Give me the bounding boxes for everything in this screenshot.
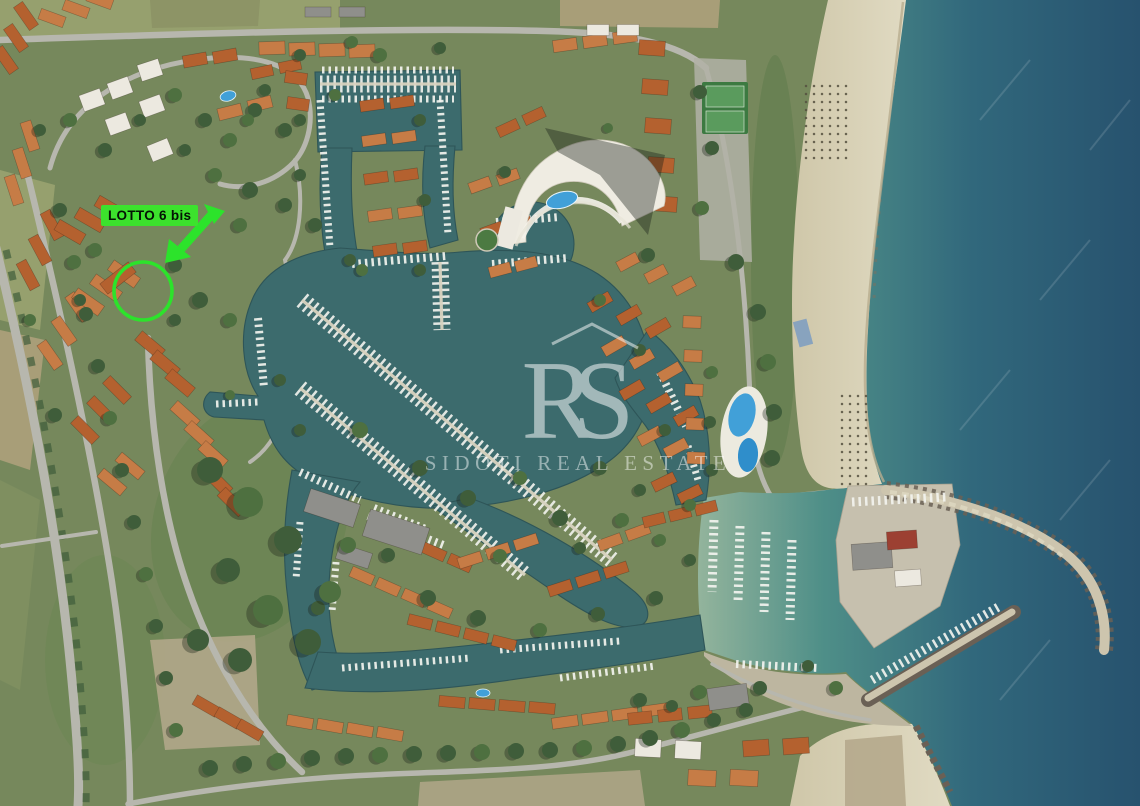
umbrella xyxy=(841,467,844,470)
tree xyxy=(706,366,718,378)
tree xyxy=(134,114,146,126)
umbrella xyxy=(857,467,860,470)
tree xyxy=(674,722,690,738)
building xyxy=(730,769,759,786)
tree xyxy=(574,542,586,554)
umbrella xyxy=(805,109,808,112)
building xyxy=(886,530,917,550)
umbrella xyxy=(849,403,852,406)
umbrella xyxy=(857,459,860,462)
tree xyxy=(127,515,141,529)
tree xyxy=(684,554,696,566)
tree xyxy=(169,314,181,326)
umbrella xyxy=(821,109,824,112)
umbrella xyxy=(821,149,824,152)
building xyxy=(639,40,666,57)
tree xyxy=(753,681,767,695)
building xyxy=(469,697,496,710)
umbrella xyxy=(865,483,868,486)
umbrella xyxy=(849,451,852,454)
tree xyxy=(340,537,356,553)
building xyxy=(642,79,669,96)
umbrella xyxy=(857,411,860,414)
umbrella xyxy=(841,395,844,398)
umbrella xyxy=(829,125,832,128)
umbrella xyxy=(813,157,816,160)
umbrella xyxy=(845,93,848,96)
umbrella xyxy=(857,403,860,406)
tree xyxy=(533,623,547,637)
umbrella xyxy=(805,133,808,136)
tree xyxy=(103,411,117,425)
building xyxy=(259,41,285,55)
umbrella xyxy=(813,117,816,120)
tree xyxy=(67,255,81,269)
building xyxy=(851,542,893,571)
tree xyxy=(615,513,629,527)
umbrella xyxy=(805,85,808,88)
tree xyxy=(542,742,558,758)
umbrella xyxy=(857,419,860,422)
umbrella xyxy=(837,157,840,160)
umbrella xyxy=(865,395,868,398)
umbrella xyxy=(845,117,848,120)
umbrella xyxy=(813,149,816,152)
tree xyxy=(499,166,511,178)
tree xyxy=(168,88,182,102)
tree xyxy=(208,168,222,182)
umbrella xyxy=(821,125,824,128)
tree xyxy=(705,141,719,155)
umbrella xyxy=(849,483,852,486)
tree xyxy=(225,390,235,400)
umbrella xyxy=(849,419,852,422)
tree xyxy=(508,743,524,759)
umbrella xyxy=(857,475,860,478)
umbrella xyxy=(837,117,840,120)
tree xyxy=(115,463,129,477)
dock xyxy=(440,262,442,330)
umbrella xyxy=(849,475,852,478)
umbrella xyxy=(857,435,860,438)
umbrella xyxy=(837,85,840,88)
tree xyxy=(634,484,646,496)
tree xyxy=(278,198,292,212)
umbrella xyxy=(805,101,808,104)
umbrella xyxy=(849,459,852,462)
umbrella xyxy=(857,443,860,446)
building xyxy=(645,118,672,135)
tree xyxy=(420,590,436,606)
tree xyxy=(304,750,320,766)
umbrella xyxy=(829,149,832,152)
umbrella xyxy=(841,411,844,414)
tennis-courts xyxy=(702,82,748,134)
building xyxy=(782,737,809,755)
tree xyxy=(693,85,707,99)
tree xyxy=(684,499,696,511)
tree xyxy=(440,745,456,761)
tree xyxy=(633,693,647,707)
tree xyxy=(576,740,592,756)
building xyxy=(894,569,921,587)
tree xyxy=(594,294,606,306)
building xyxy=(688,769,717,786)
tree xyxy=(319,581,341,603)
umbrella xyxy=(849,427,852,430)
umbrella xyxy=(837,93,840,96)
tree xyxy=(329,89,341,101)
tree xyxy=(169,723,183,737)
umbrella xyxy=(841,419,844,422)
building xyxy=(499,699,526,712)
tree xyxy=(294,169,306,181)
umbrella xyxy=(841,459,844,462)
umbrella xyxy=(829,109,832,112)
tree xyxy=(233,487,263,517)
tree xyxy=(233,218,247,232)
aerial-listing-image: RS SIDOTI REAL ESTATE LOTTO 6 bis xyxy=(0,0,1140,806)
tree xyxy=(91,359,105,373)
villa-pool xyxy=(476,689,490,697)
umbrella xyxy=(829,157,832,160)
tree xyxy=(308,218,322,232)
umbrella xyxy=(813,101,816,104)
watermark-name: SIDOTI REAL ESTATE xyxy=(425,451,732,475)
umbrella xyxy=(821,133,824,136)
tree xyxy=(603,123,613,133)
tree xyxy=(649,591,663,605)
tree xyxy=(294,424,306,436)
umbrella xyxy=(841,435,844,438)
tree xyxy=(829,681,843,695)
building xyxy=(617,25,639,36)
tree xyxy=(192,292,208,308)
tree xyxy=(223,313,237,327)
tree xyxy=(63,113,77,127)
tree xyxy=(202,760,218,776)
umbrella xyxy=(821,157,824,160)
tree xyxy=(344,254,356,266)
tree xyxy=(695,201,709,215)
tree xyxy=(460,490,476,506)
umbrella xyxy=(829,101,832,104)
umbrella xyxy=(805,149,808,152)
tree xyxy=(270,753,286,769)
tree xyxy=(493,549,507,563)
umbrella xyxy=(837,133,840,136)
umbrella xyxy=(829,85,832,88)
tree xyxy=(666,700,678,712)
satellite-imagery: RS SIDOTI REAL ESTATE xyxy=(0,0,1140,806)
umbrella xyxy=(805,93,808,96)
building xyxy=(675,740,702,759)
tree xyxy=(470,610,486,626)
umbrella xyxy=(845,85,848,88)
umbrella xyxy=(821,141,824,144)
tree xyxy=(79,307,93,321)
tree xyxy=(760,354,776,370)
dirt-lot xyxy=(845,735,906,806)
tree xyxy=(750,304,766,320)
tree xyxy=(591,607,605,621)
umbrella xyxy=(845,109,848,112)
umbrella xyxy=(841,443,844,446)
umbrella xyxy=(865,459,868,462)
tree xyxy=(295,629,321,655)
tree xyxy=(216,558,240,582)
umbrella xyxy=(841,483,844,486)
umbrella xyxy=(837,125,840,128)
tree xyxy=(474,744,490,760)
building xyxy=(529,701,556,714)
tree xyxy=(414,264,426,276)
umbrella xyxy=(865,435,868,438)
building xyxy=(685,384,703,397)
umbrella xyxy=(849,467,852,470)
tree xyxy=(74,294,86,306)
tree xyxy=(139,567,153,581)
building xyxy=(439,695,466,708)
umbrella xyxy=(845,101,848,104)
umbrella xyxy=(813,109,816,112)
umbrella xyxy=(813,93,816,96)
tree xyxy=(24,314,36,326)
umbrella xyxy=(849,411,852,414)
tree xyxy=(802,660,814,672)
umbrella xyxy=(841,427,844,430)
tree xyxy=(552,510,568,526)
building xyxy=(587,25,609,36)
tree xyxy=(278,123,292,137)
tree xyxy=(739,703,753,717)
umbrella xyxy=(845,141,848,144)
tree xyxy=(693,685,707,699)
tree xyxy=(434,42,446,54)
tree xyxy=(223,133,237,147)
umbrella xyxy=(813,85,816,88)
umbrella xyxy=(845,133,848,136)
umbrella xyxy=(829,117,832,120)
tree xyxy=(98,143,112,157)
tree xyxy=(48,408,62,422)
tree xyxy=(764,450,780,466)
garden-roundabout xyxy=(476,229,498,251)
building xyxy=(305,7,331,17)
tree xyxy=(198,113,212,127)
tree xyxy=(34,124,46,136)
tree xyxy=(187,629,209,651)
tree xyxy=(419,194,431,206)
umbrella xyxy=(805,157,808,160)
building xyxy=(684,350,702,363)
tree xyxy=(610,736,626,752)
umbrella xyxy=(845,157,848,160)
umbrella xyxy=(829,141,832,144)
umbrella xyxy=(805,117,808,120)
tree xyxy=(236,756,252,772)
umbrella xyxy=(865,403,868,406)
tree xyxy=(704,416,716,428)
tree xyxy=(406,746,422,762)
tree xyxy=(149,619,163,633)
building xyxy=(627,711,652,725)
umbrella xyxy=(813,125,816,128)
lot-label: LOTTO 6 bis xyxy=(101,205,198,226)
building xyxy=(742,739,769,757)
umbrella xyxy=(805,141,808,144)
tree xyxy=(259,84,271,96)
umbrella xyxy=(821,101,824,104)
tree xyxy=(294,49,306,61)
umbrella xyxy=(865,419,868,422)
building xyxy=(319,43,345,57)
umbrella xyxy=(813,133,816,136)
umbrella xyxy=(849,435,852,438)
umbrella xyxy=(857,483,860,486)
tree xyxy=(53,203,67,217)
umbrella xyxy=(837,109,840,112)
tree xyxy=(274,526,302,554)
umbrella xyxy=(821,85,824,88)
umbrella xyxy=(821,93,824,96)
tree xyxy=(654,534,666,546)
tree xyxy=(766,404,782,420)
tree xyxy=(356,264,368,276)
tree xyxy=(242,182,258,198)
building xyxy=(339,7,365,17)
umbrella xyxy=(805,125,808,128)
umbrella xyxy=(837,101,840,104)
tree xyxy=(642,730,658,746)
tree xyxy=(338,748,354,764)
tree xyxy=(228,648,252,672)
tree xyxy=(242,114,254,126)
tree xyxy=(346,36,358,48)
tree xyxy=(381,548,395,562)
tree xyxy=(641,248,655,262)
umbrella xyxy=(857,395,860,398)
umbrella xyxy=(837,141,840,144)
umbrella xyxy=(845,149,848,152)
umbrella xyxy=(813,141,816,144)
tree xyxy=(88,243,102,257)
umbrella xyxy=(837,149,840,152)
umbrella xyxy=(821,117,824,120)
tree xyxy=(707,713,721,727)
umbrella xyxy=(865,467,868,470)
tree xyxy=(659,424,671,436)
tree xyxy=(179,144,191,156)
umbrella xyxy=(865,451,868,454)
umbrella xyxy=(849,443,852,446)
tree xyxy=(372,747,388,763)
umbrella xyxy=(841,451,844,454)
umbrella xyxy=(841,475,844,478)
umbrella xyxy=(857,427,860,430)
tree xyxy=(294,114,306,126)
tree xyxy=(373,48,387,62)
tree xyxy=(253,595,283,625)
tree xyxy=(197,457,223,483)
umbrella xyxy=(865,443,868,446)
umbrella xyxy=(865,427,868,430)
tree xyxy=(414,114,426,126)
boat-row xyxy=(852,497,946,502)
umbrella xyxy=(857,451,860,454)
umbrella xyxy=(865,475,868,478)
building xyxy=(683,316,701,329)
umbrella xyxy=(849,395,852,398)
umbrella xyxy=(841,403,844,406)
tree xyxy=(352,422,368,438)
tree xyxy=(274,374,286,386)
tree xyxy=(728,254,744,270)
umbrella xyxy=(865,411,868,414)
umbrella xyxy=(829,93,832,96)
umbrella xyxy=(829,133,832,136)
umbrella xyxy=(845,125,848,128)
tree xyxy=(159,671,173,685)
